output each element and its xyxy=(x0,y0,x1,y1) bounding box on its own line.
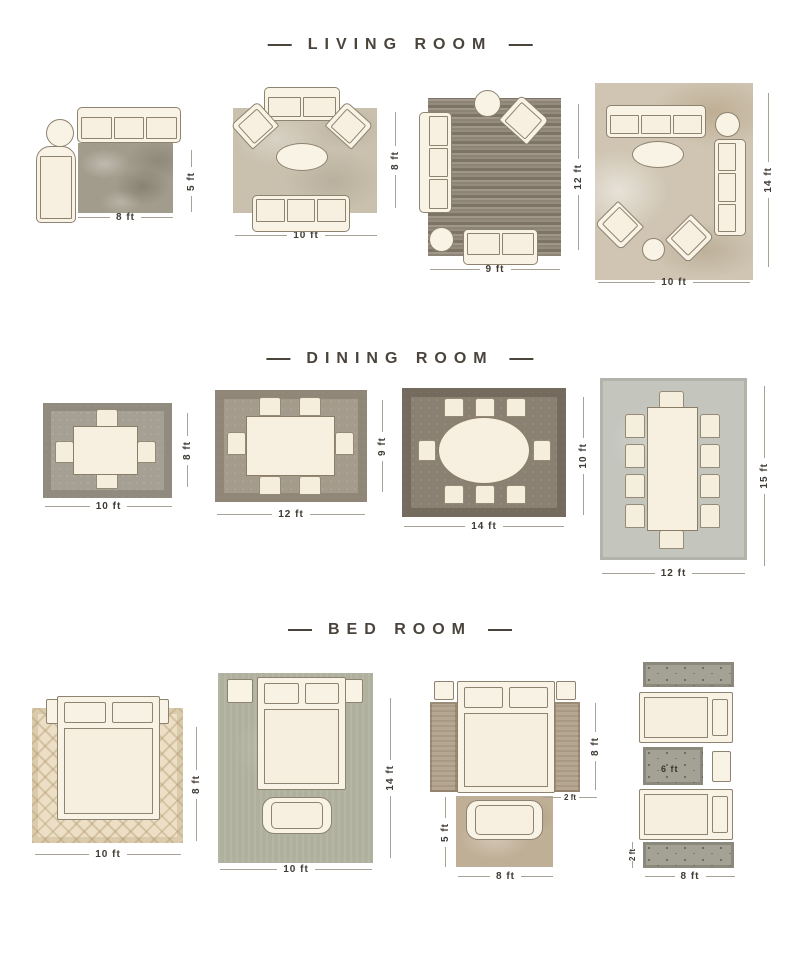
dining-chair xyxy=(444,398,464,417)
section-title-text: LIVING ROOM xyxy=(308,36,493,54)
nightstand xyxy=(434,681,454,700)
runner-height-dimension-label: 8 ft xyxy=(590,732,601,761)
title-dash-left xyxy=(266,358,290,360)
title-dash-left xyxy=(268,44,292,46)
sofa xyxy=(264,87,340,121)
width-dimension: 14 ft xyxy=(404,521,564,532)
runner-height-dimension: 2 ft xyxy=(625,842,639,868)
dining-chair xyxy=(418,440,436,461)
sofa xyxy=(714,139,746,236)
width-dimension: 10 ft xyxy=(220,864,372,875)
width-dimension-label: 8 ft xyxy=(675,871,706,882)
side-table xyxy=(474,90,501,117)
bench xyxy=(262,797,332,834)
height-dimension-label: 12 ft xyxy=(573,159,584,195)
nightstand xyxy=(556,681,576,700)
width-dimension: 10 ft xyxy=(45,501,172,512)
section-title-bed-room: BED ROOM xyxy=(288,621,512,639)
runner-rug xyxy=(643,662,734,687)
dining-chair xyxy=(625,504,645,528)
side-table xyxy=(715,112,740,137)
width-dimension-label: 12 ft xyxy=(655,568,693,579)
height-dimension: 14 ft xyxy=(383,698,397,858)
width-dimension-label: 8 ft xyxy=(110,212,141,223)
height-dimension-label: 14 ft xyxy=(763,162,774,198)
dining-chair xyxy=(55,441,74,463)
dining-chair xyxy=(299,397,321,416)
bedside-runner-rug xyxy=(430,702,457,792)
width-dimension: 12 ft xyxy=(602,568,745,579)
nightstand xyxy=(712,751,731,782)
loveseat xyxy=(463,229,538,265)
height-dimension-label: 10 ft xyxy=(578,438,589,474)
height-dimension: 10 ft xyxy=(576,397,590,515)
width-dimension: 8 ft xyxy=(645,871,735,882)
runner-height-dimension: 8 ft xyxy=(588,703,602,790)
width-dimension: 9 ft xyxy=(430,264,560,275)
chaise-chair xyxy=(36,146,76,223)
sofa xyxy=(606,105,706,138)
dining-chair xyxy=(259,476,281,495)
height-dimension: 9 ft xyxy=(375,400,389,492)
dining-chair xyxy=(227,432,246,455)
dining-chair xyxy=(506,485,526,504)
width-dimension: 12 ft xyxy=(217,509,365,520)
runner-width-dimension-label: 2 ft xyxy=(561,793,579,802)
height-dimension-label: 14 ft xyxy=(385,760,396,796)
height-dimension-label: 8 ft xyxy=(390,146,401,175)
runner-rug xyxy=(643,842,734,868)
oval-dining-table xyxy=(438,417,530,484)
height-dimension: 8 ft xyxy=(189,727,203,841)
title-dash-left xyxy=(288,629,312,631)
dining-chair xyxy=(137,441,156,463)
sofa xyxy=(419,112,452,213)
bedside-runner-rug xyxy=(554,702,580,792)
width-dimension-label: 10 ft xyxy=(277,864,315,875)
foot-rug-height-dimension: 5 ft xyxy=(438,797,452,867)
coffee-table xyxy=(276,143,328,171)
height-dimension: 8 ft xyxy=(388,112,402,208)
dining-chair xyxy=(625,474,645,498)
dining-chair xyxy=(533,440,551,461)
dining-chair xyxy=(625,444,645,468)
width-dimension-label: 10 ft xyxy=(89,849,127,860)
dining-table xyxy=(246,416,335,476)
width-dimension: 8 ft xyxy=(458,871,553,882)
coffee-table xyxy=(632,141,684,168)
area-rug xyxy=(78,143,173,213)
dining-chair xyxy=(444,485,464,504)
title-dash-right xyxy=(510,358,534,360)
section-title-text: BED ROOM xyxy=(328,621,472,639)
height-dimension-label: 8 ft xyxy=(182,436,193,465)
sofa xyxy=(77,107,181,143)
side-table xyxy=(642,238,665,261)
bench xyxy=(466,800,543,840)
side-table xyxy=(429,227,454,252)
section-title-living-room: LIVING ROOM xyxy=(268,36,533,54)
width-dimension-label: 10 ft xyxy=(90,501,128,512)
width-dimension-label: 12 ft xyxy=(272,509,310,520)
width-dimension: 10 ft xyxy=(598,277,750,288)
twin-bed xyxy=(639,789,733,840)
dining-chair xyxy=(259,397,281,416)
between-rug-width-label: 6 ft xyxy=(661,764,679,774)
foot-rug-height-dimension-label: 5 ft xyxy=(440,818,451,847)
width-dimension-label: 10 ft xyxy=(655,277,693,288)
width-dimension-label: 14 ft xyxy=(465,521,503,532)
section-title-dining-room: DINING ROOM xyxy=(266,350,533,368)
dining-chair xyxy=(475,398,495,417)
twin-bed xyxy=(639,692,733,743)
bed xyxy=(57,696,160,820)
height-dimension-label: 5 ft xyxy=(186,167,197,196)
width-dimension: 8 ft xyxy=(78,212,173,223)
dining-chair xyxy=(700,474,720,498)
dining-chair xyxy=(700,504,720,528)
height-dimension: 12 ft xyxy=(571,104,585,250)
dining-chair xyxy=(700,414,720,438)
title-dash-right xyxy=(508,44,532,46)
dining-chair xyxy=(700,444,720,468)
dining-table xyxy=(73,426,138,475)
runner-width-dimension: 2 ft xyxy=(543,793,597,802)
width-dimension-label: 8 ft xyxy=(490,871,521,882)
rug-size-guide: LIVING ROOM 5 ft 8 ft 8 ft 10 ft 12 ft 9… xyxy=(0,0,800,976)
dining-chair xyxy=(659,530,684,549)
title-dash-right xyxy=(488,629,512,631)
section-title-text: DINING ROOM xyxy=(306,350,493,368)
width-dimension-label: 9 ft xyxy=(480,264,511,275)
runner-height-dimension-label: 2 ft xyxy=(625,849,640,861)
dining-chair xyxy=(475,485,495,504)
dining-chair xyxy=(625,414,645,438)
dining-table xyxy=(647,407,698,531)
dining-chair xyxy=(335,432,354,455)
height-dimension-label: 9 ft xyxy=(377,432,388,461)
nightstand xyxy=(227,679,253,703)
height-dimension: 15 ft xyxy=(757,386,771,566)
dining-chair xyxy=(506,398,526,417)
bed xyxy=(457,681,555,793)
side-table xyxy=(46,119,74,147)
height-dimension: 5 ft xyxy=(184,150,198,212)
height-dimension-label: 8 ft xyxy=(191,770,202,799)
height-dimension: 14 ft xyxy=(761,93,775,267)
height-dimension: 8 ft xyxy=(180,413,194,487)
bed xyxy=(257,677,346,790)
height-dimension-label: 15 ft xyxy=(759,458,770,494)
width-dimension: 10 ft xyxy=(35,849,181,860)
sofa xyxy=(252,195,350,232)
dining-chair xyxy=(299,476,321,495)
